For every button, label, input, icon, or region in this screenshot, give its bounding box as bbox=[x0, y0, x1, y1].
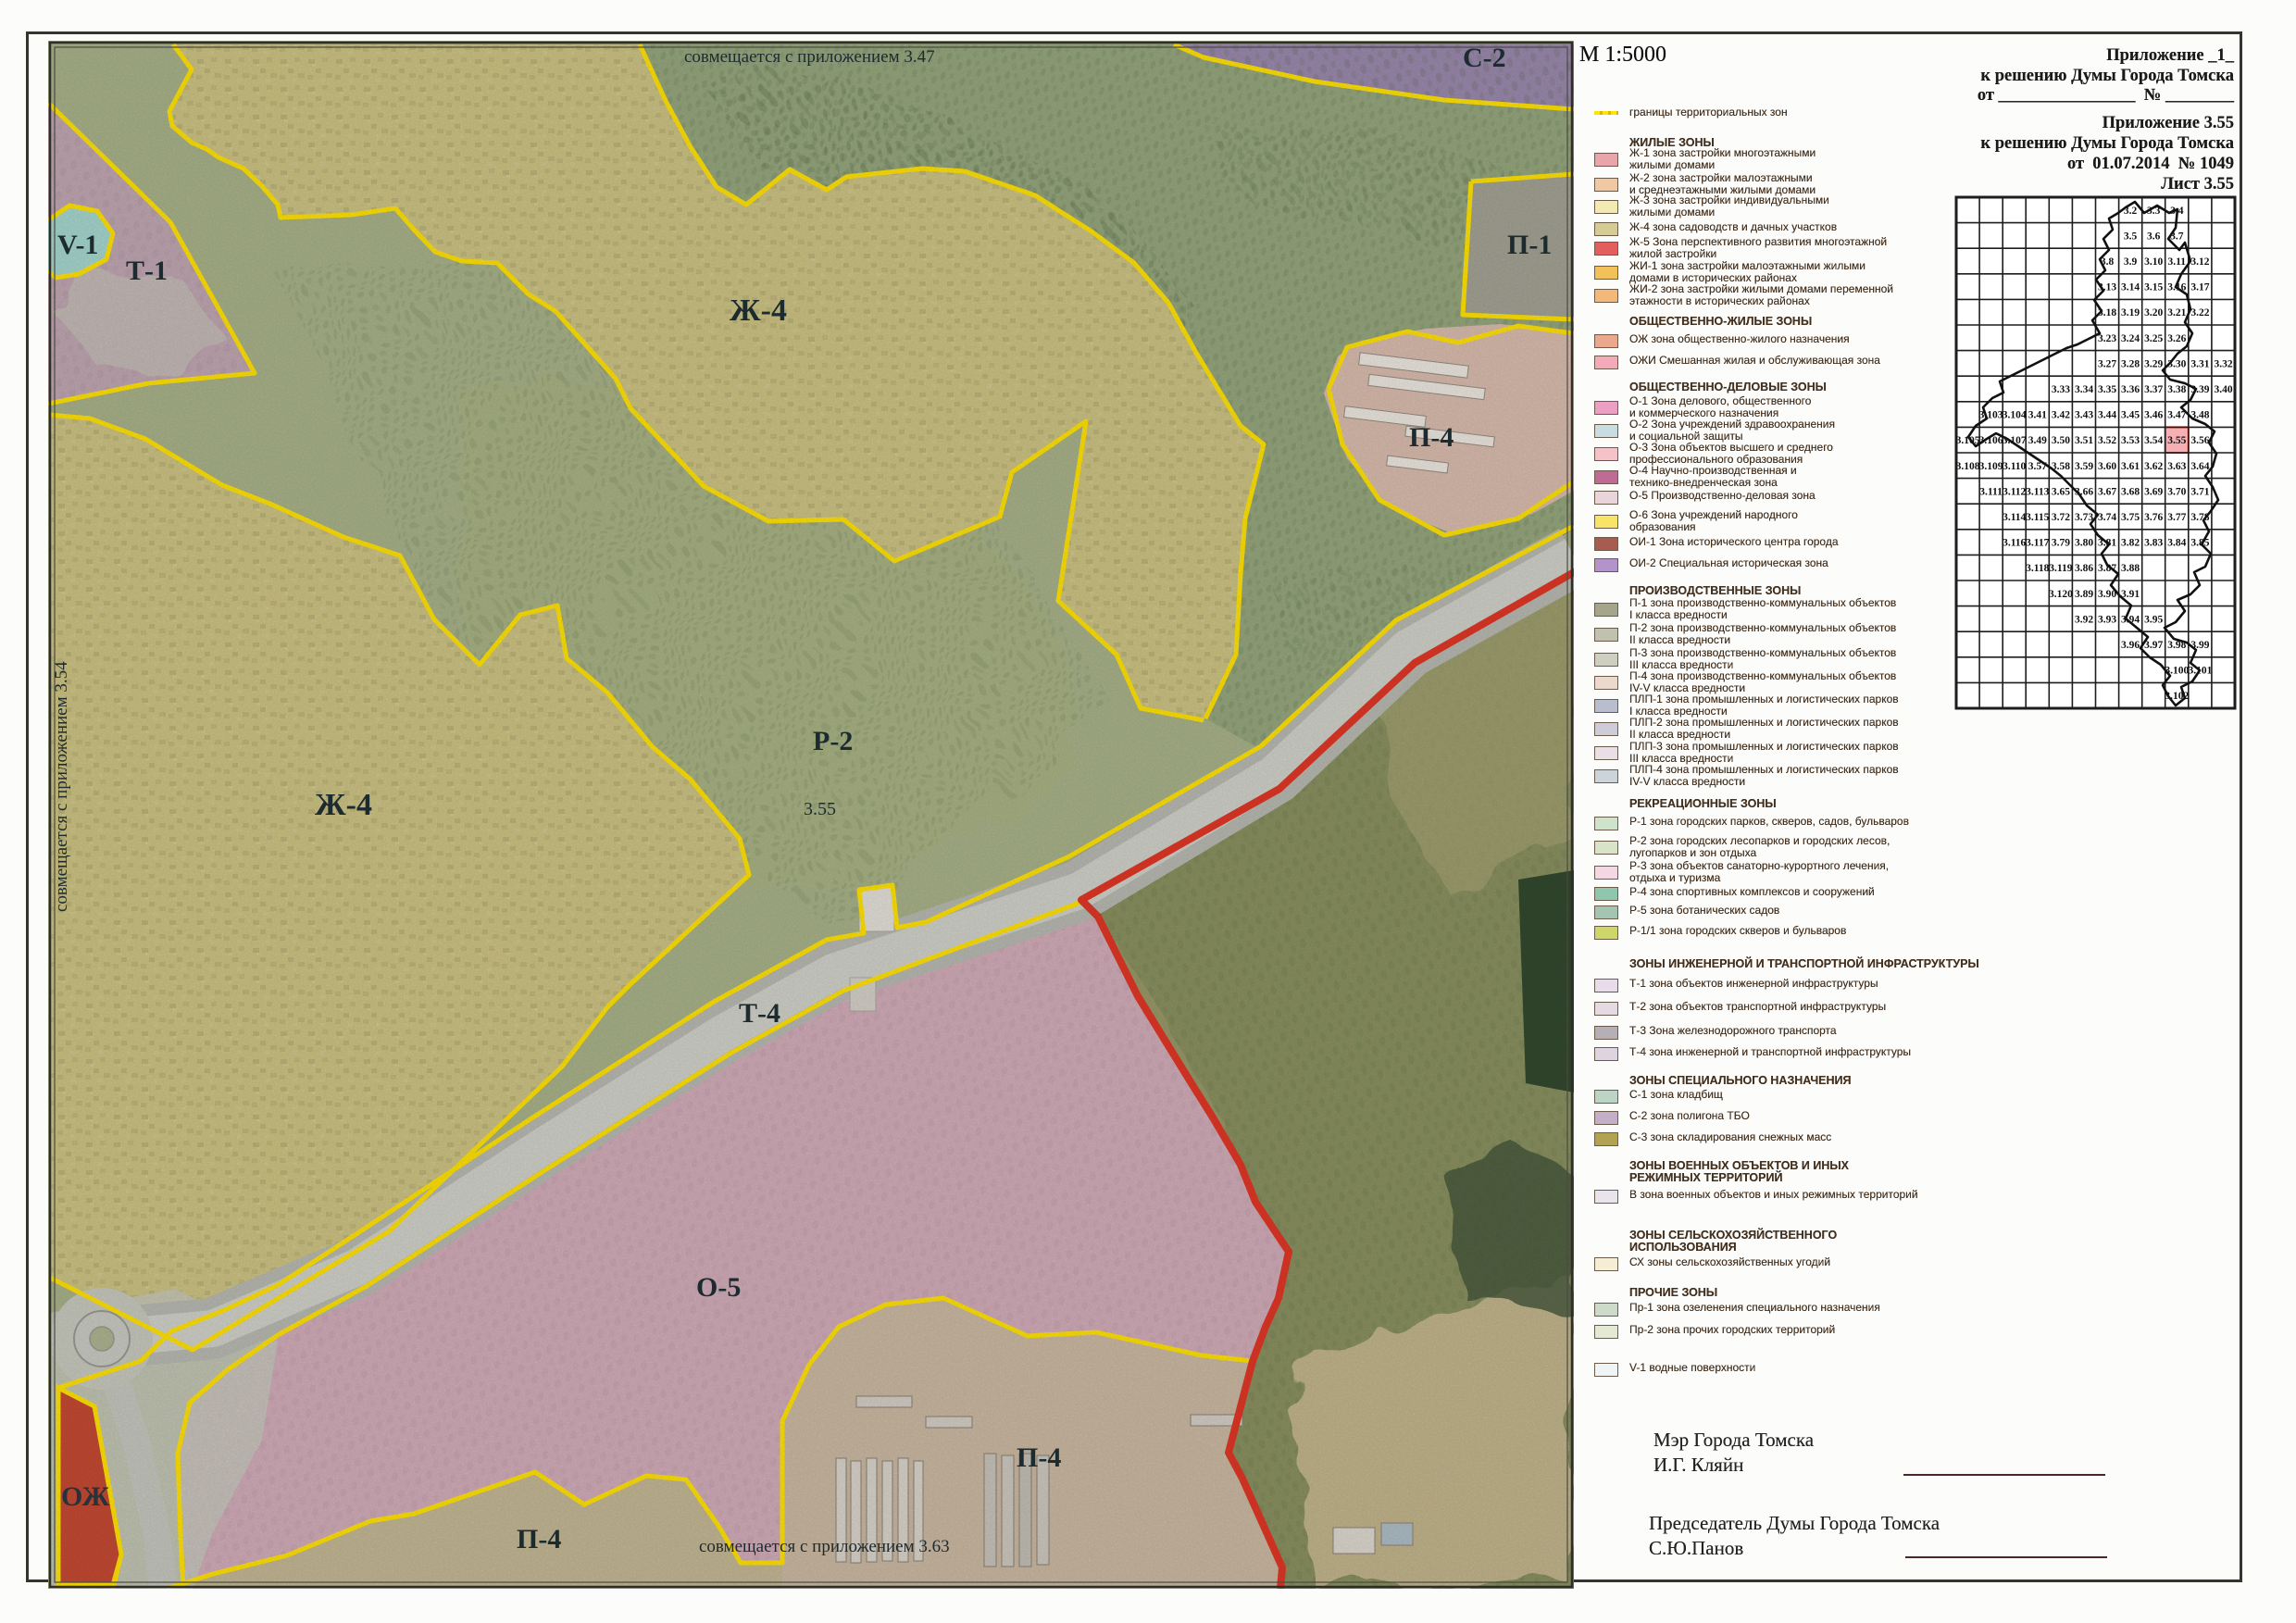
svg-text:3.82: 3.82 bbox=[2121, 538, 2140, 549]
svg-text:3.119: 3.119 bbox=[2049, 563, 2072, 574]
svg-text:3.40: 3.40 bbox=[2214, 384, 2232, 395]
svg-text:3.33: 3.33 bbox=[2052, 384, 2070, 395]
svg-text:Ж-4: Ж-4 bbox=[730, 293, 787, 328]
svg-text:3.79: 3.79 bbox=[2052, 538, 2070, 549]
svg-text:3.84: 3.84 bbox=[2167, 538, 2186, 549]
svg-text:3.86: 3.86 bbox=[2075, 563, 2093, 574]
svg-text:3.68: 3.68 bbox=[2121, 486, 2140, 497]
svg-text:3.35: 3.35 bbox=[2098, 384, 2116, 395]
svg-text:О-5: О-5 bbox=[696, 1272, 741, 1303]
svg-text:3.104: 3.104 bbox=[2003, 410, 2027, 421]
svg-text:3.75: 3.75 bbox=[2121, 512, 2140, 523]
svg-text:П-1: П-1 bbox=[1507, 230, 1552, 260]
svg-text:3.43: 3.43 bbox=[2075, 410, 2093, 421]
svg-text:Р-2: Р-2 bbox=[813, 726, 853, 756]
svg-text:П-4: П-4 bbox=[517, 1524, 561, 1554]
svg-text:3.31: 3.31 bbox=[2190, 358, 2209, 369]
svg-text:3.108: 3.108 bbox=[1956, 461, 1980, 472]
svg-text:совмещается с приложением 3.54: совмещается с приложением 3.54 bbox=[52, 661, 71, 912]
svg-text:3.70: 3.70 bbox=[2167, 486, 2186, 497]
svg-text:3.109: 3.109 bbox=[1979, 461, 2003, 472]
svg-text:3.62: 3.62 bbox=[2144, 461, 2163, 472]
svg-text:V-1: V-1 bbox=[57, 230, 98, 260]
svg-text:3.120: 3.120 bbox=[2049, 589, 2073, 600]
svg-text:3.10: 3.10 bbox=[2144, 256, 2163, 268]
svg-text:3.85: 3.85 bbox=[2190, 538, 2209, 549]
svg-text:3.73: 3.73 bbox=[2075, 512, 2093, 523]
svg-text:3.14: 3.14 bbox=[2121, 282, 2140, 293]
svg-text:Т-1: Т-1 bbox=[126, 256, 168, 286]
svg-text:3.76: 3.76 bbox=[2144, 512, 2163, 523]
svg-text:3.29: 3.29 bbox=[2144, 358, 2163, 369]
svg-text:3.47: 3.47 bbox=[2167, 410, 2186, 421]
svg-text:3.24: 3.24 bbox=[2121, 333, 2140, 344]
svg-text:3.97: 3.97 bbox=[2144, 640, 2163, 651]
svg-text:3.89: 3.89 bbox=[2075, 589, 2093, 600]
svg-text:3.67: 3.67 bbox=[2098, 486, 2116, 497]
svg-text:3.46: 3.46 bbox=[2144, 410, 2163, 421]
svg-text:3.59: 3.59 bbox=[2075, 461, 2093, 472]
svg-text:3.12: 3.12 bbox=[2190, 256, 2209, 268]
svg-text:3.34: 3.34 bbox=[2075, 384, 2093, 395]
svg-text:3.20: 3.20 bbox=[2144, 307, 2163, 318]
svg-text:3.80: 3.80 bbox=[2075, 538, 2093, 549]
svg-text:3.36: 3.36 bbox=[2121, 384, 2140, 395]
svg-text:3.114: 3.114 bbox=[2003, 512, 2026, 523]
svg-text:3.63: 3.63 bbox=[2167, 461, 2186, 472]
svg-text:3.41: 3.41 bbox=[2028, 410, 2047, 421]
svg-text:3.42: 3.42 bbox=[2052, 410, 2070, 421]
svg-text:3.32: 3.32 bbox=[2214, 358, 2232, 369]
svg-text:3.28: 3.28 bbox=[2121, 358, 2140, 369]
svg-text:ОЖ: ОЖ bbox=[61, 1481, 110, 1512]
svg-text:3.15: 3.15 bbox=[2144, 282, 2163, 293]
svg-text:Т-4: Т-4 bbox=[739, 998, 780, 1029]
svg-text:3.55: 3.55 bbox=[804, 799, 836, 819]
svg-text:3.110: 3.110 bbox=[2003, 461, 2026, 472]
svg-text:П-4: П-4 bbox=[1409, 422, 1454, 453]
svg-text:3.38: 3.38 bbox=[2167, 384, 2186, 395]
svg-text:3.11: 3.11 bbox=[2168, 256, 2187, 268]
svg-text:3.25: 3.25 bbox=[2144, 333, 2163, 344]
svg-text:3.22: 3.22 bbox=[2190, 307, 2209, 318]
svg-text:3.55: 3.55 bbox=[2167, 435, 2186, 446]
svg-text:3.83: 3.83 bbox=[2144, 538, 2163, 549]
svg-text:3.60: 3.60 bbox=[2098, 461, 2116, 472]
svg-text:3.93: 3.93 bbox=[2098, 614, 2116, 625]
svg-text:3.44: 3.44 bbox=[2098, 410, 2116, 421]
svg-text:3.51: 3.51 bbox=[2075, 435, 2093, 446]
svg-text:3.116: 3.116 bbox=[2003, 538, 2026, 549]
svg-text:3.65: 3.65 bbox=[2052, 486, 2070, 497]
svg-text:3.69: 3.69 bbox=[2144, 486, 2163, 497]
svg-text:3.45: 3.45 bbox=[2121, 410, 2140, 421]
svg-text:3.21: 3.21 bbox=[2167, 307, 2186, 318]
svg-text:3.56: 3.56 bbox=[2190, 435, 2209, 446]
svg-text:3.111: 3.111 bbox=[1979, 486, 2003, 497]
svg-text:3.88: 3.88 bbox=[2121, 563, 2140, 574]
svg-text:3.26: 3.26 bbox=[2167, 333, 2186, 344]
svg-text:3.113: 3.113 bbox=[2026, 486, 2049, 497]
svg-text:3.112: 3.112 bbox=[2003, 486, 2026, 497]
svg-text:3.27: 3.27 bbox=[2098, 358, 2116, 369]
svg-text:3.115: 3.115 bbox=[2026, 512, 2049, 523]
svg-text:П-4: П-4 bbox=[1017, 1442, 1061, 1473]
svg-text:3.37: 3.37 bbox=[2144, 384, 2163, 395]
svg-text:3.52: 3.52 bbox=[2098, 435, 2116, 446]
svg-text:3.72: 3.72 bbox=[2052, 512, 2070, 523]
svg-text:3.61: 3.61 bbox=[2121, 461, 2140, 472]
svg-text:С-2: С-2 bbox=[1463, 43, 1506, 73]
svg-text:3.74: 3.74 bbox=[2098, 512, 2116, 523]
svg-text:3.23: 3.23 bbox=[2098, 333, 2116, 344]
svg-text:3.118: 3.118 bbox=[2026, 563, 2049, 574]
svg-text:3.96: 3.96 bbox=[2121, 640, 2140, 651]
svg-text:3.95: 3.95 bbox=[2144, 614, 2163, 625]
svg-text:3.53: 3.53 bbox=[2121, 435, 2140, 446]
svg-text:3.50: 3.50 bbox=[2052, 435, 2070, 446]
svg-text:совмещается с приложением 3.63: совмещается с приложением 3.63 bbox=[699, 1537, 950, 1556]
svg-text:3.71: 3.71 bbox=[2190, 486, 2209, 497]
svg-text:3.54: 3.54 bbox=[2144, 435, 2163, 446]
svg-text:3.9: 3.9 bbox=[2124, 256, 2138, 268]
svg-text:3.6: 3.6 bbox=[2147, 231, 2161, 242]
svg-text:3.77: 3.77 bbox=[2167, 512, 2186, 523]
svg-text:3.19: 3.19 bbox=[2121, 307, 2140, 318]
svg-text:3.64: 3.64 bbox=[2190, 461, 2209, 472]
svg-text:совмещается с приложением 3.47: совмещается с приложением 3.47 bbox=[684, 47, 935, 67]
svg-text:3.92: 3.92 bbox=[2075, 614, 2093, 625]
svg-text:3.103: 3.103 bbox=[1979, 410, 2003, 421]
svg-text:Ж-4: Ж-4 bbox=[315, 788, 372, 822]
svg-text:3.117: 3.117 bbox=[2026, 538, 2049, 549]
svg-text:3.5: 3.5 bbox=[2124, 231, 2138, 242]
svg-text:3.49: 3.49 bbox=[2028, 435, 2047, 446]
svg-text:3.17: 3.17 bbox=[2190, 282, 2209, 293]
